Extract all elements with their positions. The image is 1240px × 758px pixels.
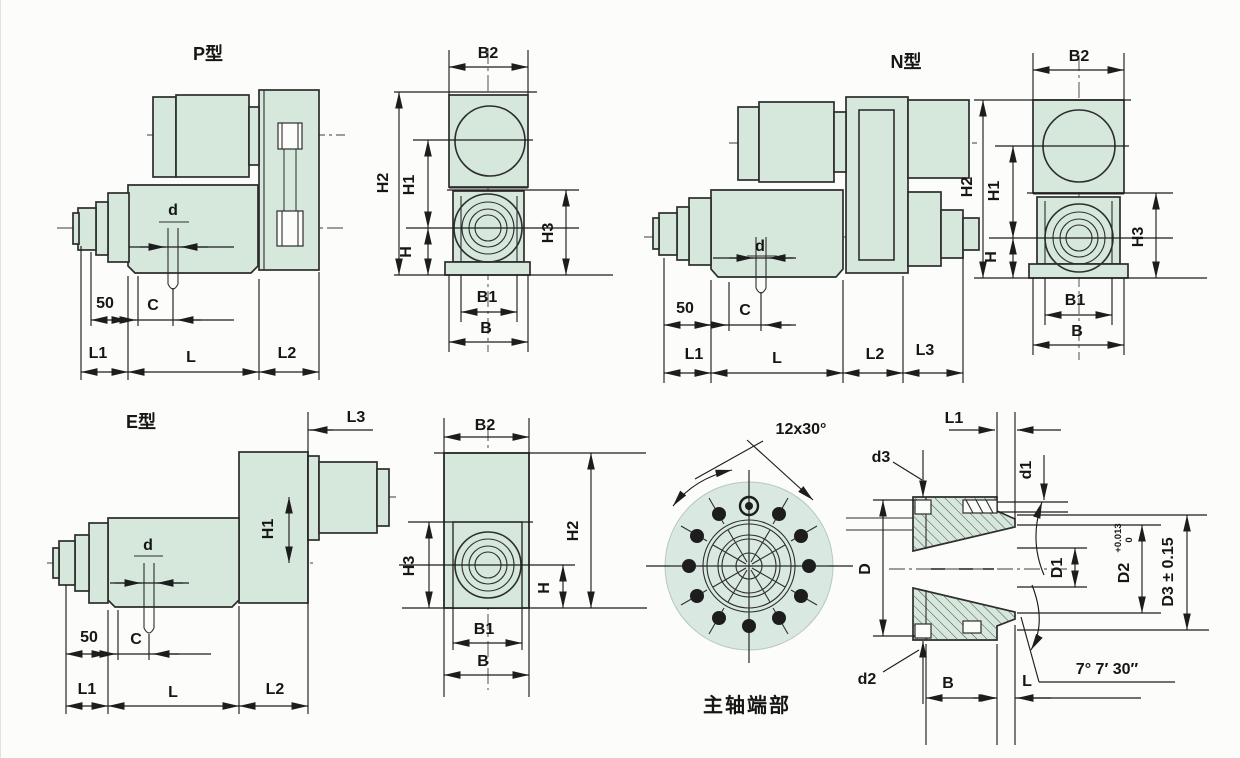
n-dim-l2: L2 bbox=[866, 346, 885, 363]
sec-dim-taper-angle: 7° 7′ 30″ bbox=[1076, 661, 1139, 678]
p-dim-50: 50 bbox=[96, 295, 114, 312]
spindle-housing bbox=[128, 185, 258, 273]
d2-bolt-hole bbox=[915, 624, 931, 638]
ef-dim-h2: H2 bbox=[565, 521, 582, 542]
ef-dim-b2: B2 bbox=[475, 417, 496, 434]
sec-dim-D3: D3 ± 0.15 bbox=[1160, 537, 1177, 606]
p-dim-l1: L1 bbox=[89, 345, 108, 362]
e-type-title: E型 bbox=[126, 411, 156, 432]
n-dim-50: 50 bbox=[676, 300, 694, 317]
ef-dim-b: B bbox=[477, 653, 489, 670]
pf-dim-h1: H1 bbox=[401, 175, 418, 196]
pf-dim-h2: H2 bbox=[375, 173, 392, 194]
spindle-nose bbox=[108, 193, 129, 262]
sec-dim-D: D bbox=[857, 563, 874, 575]
motor-body bbox=[759, 102, 834, 182]
n-dim-l3: L3 bbox=[916, 342, 935, 359]
e-dim-l: L bbox=[168, 684, 178, 701]
sec-dim-L: L bbox=[1022, 673, 1032, 690]
sec-dim-D2-tol-lower: 0 bbox=[1124, 537, 1135, 542]
e-dim-d: d bbox=[143, 537, 153, 554]
p-dim-l: L bbox=[186, 349, 196, 366]
spindle-housing bbox=[108, 518, 239, 607]
sec-dim-B: B bbox=[942, 675, 954, 692]
view-p-type-side: P型 d 50 C L1 L L2 bbox=[57, 43, 345, 380]
pf-dim-h: H bbox=[398, 246, 415, 258]
motor-body bbox=[176, 95, 249, 177]
n-dim-c: C bbox=[739, 302, 751, 319]
view-spindle-end-face: 12x30° 主轴端部 bbox=[646, 421, 853, 717]
e-dim-c: C bbox=[130, 631, 142, 648]
nf-dim-b2: B2 bbox=[1069, 48, 1090, 65]
view-p-type-front: B2 H2 H1 H H3 B1 B bbox=[375, 45, 613, 352]
base-flange bbox=[1029, 264, 1128, 278]
spindle-housing bbox=[711, 190, 843, 277]
sec-dim-d1: d1 bbox=[1018, 461, 1035, 480]
p-dim-d: d bbox=[168, 202, 178, 219]
p-dim-l2: L2 bbox=[278, 345, 297, 362]
nf-dim-h1: H1 bbox=[986, 181, 1003, 202]
e-dim-l3: L3 bbox=[347, 409, 366, 426]
spindle-nose bbox=[89, 523, 108, 603]
pf-dim-b1: B1 bbox=[477, 289, 498, 306]
nf-dim-b1: B1 bbox=[1065, 292, 1086, 309]
n-dim-d: d bbox=[755, 238, 765, 255]
keyway-notch bbox=[963, 621, 981, 633]
d3-bolt-hole bbox=[915, 500, 931, 514]
motor-body bbox=[319, 462, 377, 533]
view-n-type-side: N型 d 50 C L1 L L2 L3 bbox=[644, 51, 979, 383]
view-e-type-front: B2 H3 H H2 B1 B bbox=[399, 417, 647, 697]
gear-housing bbox=[846, 97, 908, 273]
nf-dim-h3: H3 bbox=[1130, 227, 1147, 248]
sec-dim-l1: L1 bbox=[945, 410, 964, 427]
n-type-title: N型 bbox=[891, 51, 922, 72]
spindle-end-caption: 主轴端部 bbox=[703, 693, 791, 717]
nf-dim-h: H bbox=[983, 251, 1000, 263]
base-flange bbox=[445, 262, 530, 275]
n-dim-l1: L1 bbox=[685, 346, 704, 363]
ef-dim-b1: B1 bbox=[474, 621, 495, 638]
lower-pulley bbox=[277, 211, 303, 246]
sec-dim-d3: d3 bbox=[872, 449, 891, 466]
pf-dim-b: B bbox=[480, 320, 492, 337]
e-dim-50: 50 bbox=[80, 629, 98, 646]
e-dim-l2: L2 bbox=[266, 681, 285, 698]
nf-dim-b: B bbox=[1071, 323, 1083, 340]
motor-end-cap bbox=[153, 97, 176, 177]
e-dim-h1: H1 bbox=[260, 519, 277, 540]
engineering-drawing-page: P型 d 50 C L1 L L2 B2 H2 H1 H bbox=[0, 0, 1240, 758]
view-e-type-side: E型 L3 H1 d 50 C L1 L L2 bbox=[47, 409, 398, 714]
n-dim-l: L bbox=[772, 350, 782, 367]
spindle-nose bbox=[689, 198, 711, 265]
view-n-type-front: B2 H2 H1 H H3 B1 B bbox=[959, 48, 1207, 360]
sec-dim-d2: d2 bbox=[858, 671, 877, 688]
nf-dim-h2: H2 bbox=[959, 177, 976, 198]
sec-dim-D1: D1 bbox=[1049, 558, 1066, 579]
technical-drawing-canvas: P型 d 50 C L1 L L2 B2 H2 H1 H bbox=[1, 0, 1240, 758]
bolt-pattern-note: 12x30° bbox=[776, 421, 827, 438]
p-dim-c: C bbox=[147, 297, 159, 314]
motor-front-block bbox=[449, 95, 528, 187]
motor-end-cap bbox=[738, 107, 759, 180]
motor-end-cap bbox=[377, 469, 389, 526]
view-spindle-nose-section: L1 d1 d3 d2 D D1 D2 +0.013 0 D3 ± 0.15 7… bbox=[846, 410, 1209, 745]
sec-dim-D2: D2 bbox=[1116, 563, 1133, 584]
ef-dim-h3: H3 bbox=[401, 556, 418, 577]
ef-dim-h: H bbox=[536, 582, 553, 594]
pf-dim-h3: H3 bbox=[540, 223, 557, 244]
sec-dim-D2-tol-upper: +0.013 bbox=[1113, 523, 1124, 552]
pf-dim-b2: B2 bbox=[478, 45, 499, 62]
p-type-title: P型 bbox=[193, 43, 223, 64]
e-dim-l1: L1 bbox=[78, 681, 97, 698]
